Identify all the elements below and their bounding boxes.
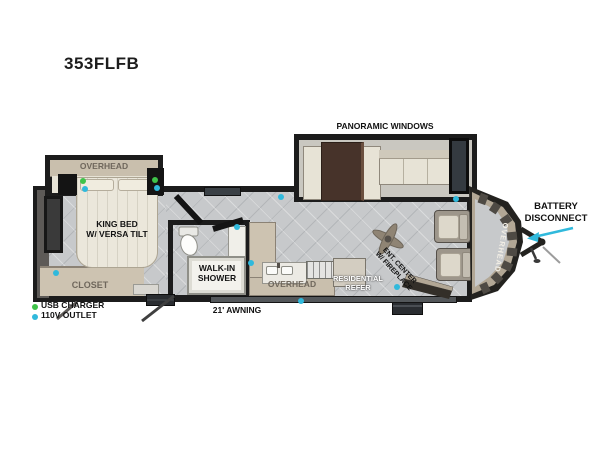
outlet-110v-dot	[53, 270, 59, 276]
usb-charger-dot	[152, 177, 158, 183]
closet-label: CLOSET	[44, 280, 136, 290]
floorplan-canvas: 353FLFB PANORAMIC WINDOWS OVERHEAD KING …	[0, 0, 600, 450]
battery-disconnect-arrow	[527, 228, 573, 242]
toilet-icon	[178, 227, 200, 257]
battery-disconnect-label: BATTERY DISCONNECT	[514, 201, 598, 225]
outlet-110v-dot	[453, 196, 459, 202]
hitch-tongue	[521, 229, 560, 263]
door-leaves	[176, 196, 243, 229]
kitchen-overhead-label: OVERHEAD	[250, 280, 334, 290]
outlet-110v-dot	[234, 224, 240, 230]
model-title: 353FLFB	[64, 54, 139, 74]
legend-usb-dot	[32, 304, 38, 310]
king-bed-label: KING BED W/ VERSA TILT	[79, 220, 155, 240]
usb-charger-dot	[80, 178, 86, 184]
bedroom-overhead-label: OVERHEAD	[50, 162, 158, 172]
outlet-110v-dot	[278, 194, 284, 200]
walk-in-shower-label: WALK-IN SHOWER	[189, 264, 245, 284]
panoramic-windows-label: PANORAMIC WINDOWS	[329, 122, 441, 132]
outlet-110v-dot	[82, 186, 88, 192]
outlet-110v-dot	[154, 185, 160, 191]
residential-refer-label: RESIDENTIAL REFER	[328, 275, 388, 292]
legend-110v-label: 110V OUTLET	[41, 311, 97, 321]
outlet-110v-dot	[298, 298, 304, 304]
awning-label: 21' AWNING	[203, 306, 271, 316]
outlet-110v-dot	[248, 260, 254, 266]
legend-110v-dot	[32, 314, 38, 320]
